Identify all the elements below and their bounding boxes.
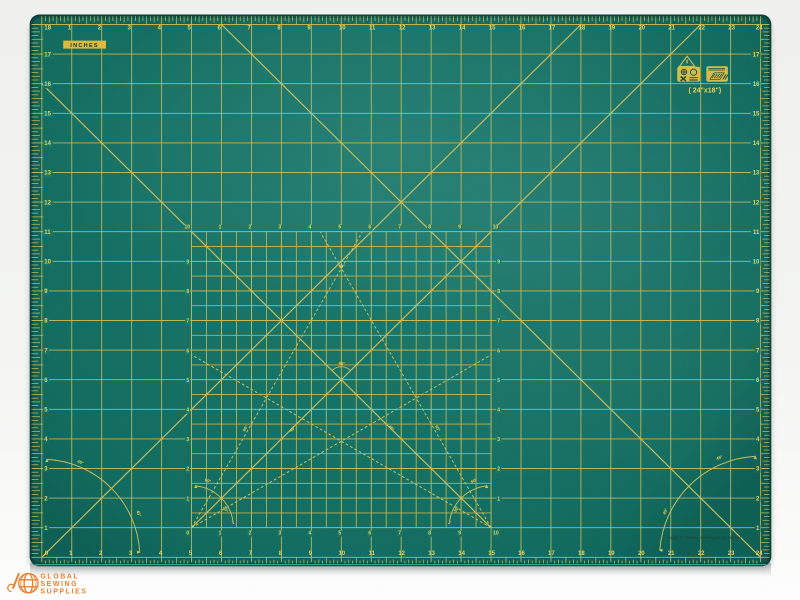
svg-text:16: 16 bbox=[518, 551, 525, 557]
svg-text:5: 5 bbox=[186, 378, 189, 384]
svg-text:8: 8 bbox=[428, 225, 431, 231]
svg-text:17: 17 bbox=[44, 52, 51, 58]
svg-text:19: 19 bbox=[608, 551, 615, 557]
svg-text:MADE IN JAPAN · FABRIQUE AU JA: MADE IN JAPAN · FABRIQUE AU JAPON bbox=[667, 536, 740, 540]
svg-text:9: 9 bbox=[497, 260, 500, 266]
svg-text:4: 4 bbox=[186, 408, 189, 414]
svg-text:7: 7 bbox=[497, 319, 500, 325]
svg-text:1: 1 bbox=[497, 496, 500, 502]
svg-text:12: 12 bbox=[44, 200, 51, 206]
svg-text:10: 10 bbox=[338, 551, 345, 557]
svg-text:7: 7 bbox=[186, 319, 189, 325]
svg-text:5: 5 bbox=[338, 225, 341, 231]
svg-text:4: 4 bbox=[309, 530, 312, 536]
svg-text:SEWING: SEWING bbox=[40, 581, 78, 588]
svg-text:21: 21 bbox=[668, 551, 675, 557]
svg-text:12: 12 bbox=[753, 200, 760, 206]
svg-text:21: 21 bbox=[668, 26, 675, 32]
svg-text:13: 13 bbox=[753, 171, 760, 177]
svg-text:11: 11 bbox=[369, 551, 376, 557]
svg-text:11: 11 bbox=[753, 230, 760, 236]
svg-text:3: 3 bbox=[186, 437, 189, 443]
svg-text:5: 5 bbox=[497, 378, 500, 384]
svg-text:14: 14 bbox=[458, 551, 465, 557]
svg-text:15: 15 bbox=[44, 112, 51, 118]
svg-text:6: 6 bbox=[186, 348, 189, 354]
svg-text:16: 16 bbox=[44, 82, 51, 88]
svg-text:6: 6 bbox=[497, 348, 500, 354]
svg-text:SUPPLIES: SUPPLIES bbox=[40, 588, 87, 595]
svg-text:4: 4 bbox=[309, 225, 312, 231]
svg-text:12: 12 bbox=[398, 551, 405, 557]
svg-text:90°: 90° bbox=[339, 361, 346, 366]
svg-text:20: 20 bbox=[638, 26, 645, 32]
svg-text:14: 14 bbox=[459, 26, 466, 32]
svg-text:2: 2 bbox=[186, 467, 189, 473]
svg-text:3: 3 bbox=[497, 437, 500, 443]
svg-text:18: 18 bbox=[579, 26, 586, 32]
svg-text:10: 10 bbox=[493, 225, 499, 231]
svg-text:15: 15 bbox=[489, 26, 496, 32]
svg-text:8: 8 bbox=[186, 289, 189, 295]
svg-text:22: 22 bbox=[698, 551, 705, 557]
svg-text:GLOBAL: GLOBAL bbox=[40, 574, 79, 581]
svg-text:10: 10 bbox=[493, 530, 499, 536]
svg-text:7: 7 bbox=[398, 225, 401, 231]
svg-text:9: 9 bbox=[186, 260, 189, 266]
svg-text:19: 19 bbox=[608, 26, 615, 32]
svg-text:3: 3 bbox=[279, 530, 282, 536]
svg-text:23: 23 bbox=[728, 551, 735, 557]
svg-text:1: 1 bbox=[219, 225, 222, 231]
svg-text:14: 14 bbox=[44, 141, 51, 147]
svg-text:14: 14 bbox=[753, 141, 760, 147]
svg-text:13: 13 bbox=[429, 26, 436, 32]
svg-text:17: 17 bbox=[548, 551, 555, 557]
svg-text:10: 10 bbox=[185, 225, 191, 231]
svg-text:12: 12 bbox=[399, 26, 406, 32]
svg-text:10: 10 bbox=[44, 260, 51, 266]
svg-text:18: 18 bbox=[44, 26, 51, 32]
svg-text:6: 6 bbox=[368, 530, 371, 536]
svg-text:23: 23 bbox=[728, 26, 735, 32]
svg-text:1: 1 bbox=[186, 496, 189, 502]
svg-text:5: 5 bbox=[338, 530, 341, 536]
svg-text:0: 0 bbox=[186, 530, 189, 536]
svg-text:( 24"x18"): ( 24"x18") bbox=[688, 88, 721, 95]
svg-text:9: 9 bbox=[458, 530, 461, 536]
svg-text:18: 18 bbox=[578, 551, 585, 557]
svg-text:INCHES: INCHES bbox=[70, 43, 99, 49]
svg-text:17: 17 bbox=[753, 52, 760, 58]
svg-text:15: 15 bbox=[753, 112, 760, 118]
svg-text:4: 4 bbox=[497, 408, 500, 414]
svg-text:16: 16 bbox=[753, 82, 760, 88]
svg-text:2: 2 bbox=[249, 530, 252, 536]
svg-text:6: 6 bbox=[368, 225, 371, 231]
svg-text:7: 7 bbox=[398, 530, 401, 536]
svg-text:22: 22 bbox=[698, 26, 705, 32]
svg-text:1: 1 bbox=[219, 530, 222, 536]
svg-text:24: 24 bbox=[756, 551, 763, 557]
svg-text:13: 13 bbox=[44, 171, 51, 177]
svg-text:60°: 60° bbox=[339, 264, 346, 269]
svg-text:2: 2 bbox=[249, 225, 252, 231]
svg-text:2: 2 bbox=[497, 467, 500, 473]
svg-text:11: 11 bbox=[44, 230, 51, 236]
svg-text:9: 9 bbox=[458, 225, 461, 231]
svg-text:16: 16 bbox=[519, 26, 526, 32]
svg-text:11: 11 bbox=[369, 26, 376, 32]
svg-text:10: 10 bbox=[753, 260, 760, 266]
svg-text:3: 3 bbox=[279, 225, 282, 231]
svg-text:8: 8 bbox=[428, 530, 431, 536]
svg-text:20: 20 bbox=[638, 551, 645, 557]
svg-text:17: 17 bbox=[549, 26, 556, 32]
svg-text:24: 24 bbox=[756, 26, 763, 32]
svg-text:8: 8 bbox=[497, 289, 500, 295]
svg-text:15: 15 bbox=[488, 551, 495, 557]
svg-text:10: 10 bbox=[339, 26, 346, 32]
svg-text:13: 13 bbox=[428, 551, 435, 557]
